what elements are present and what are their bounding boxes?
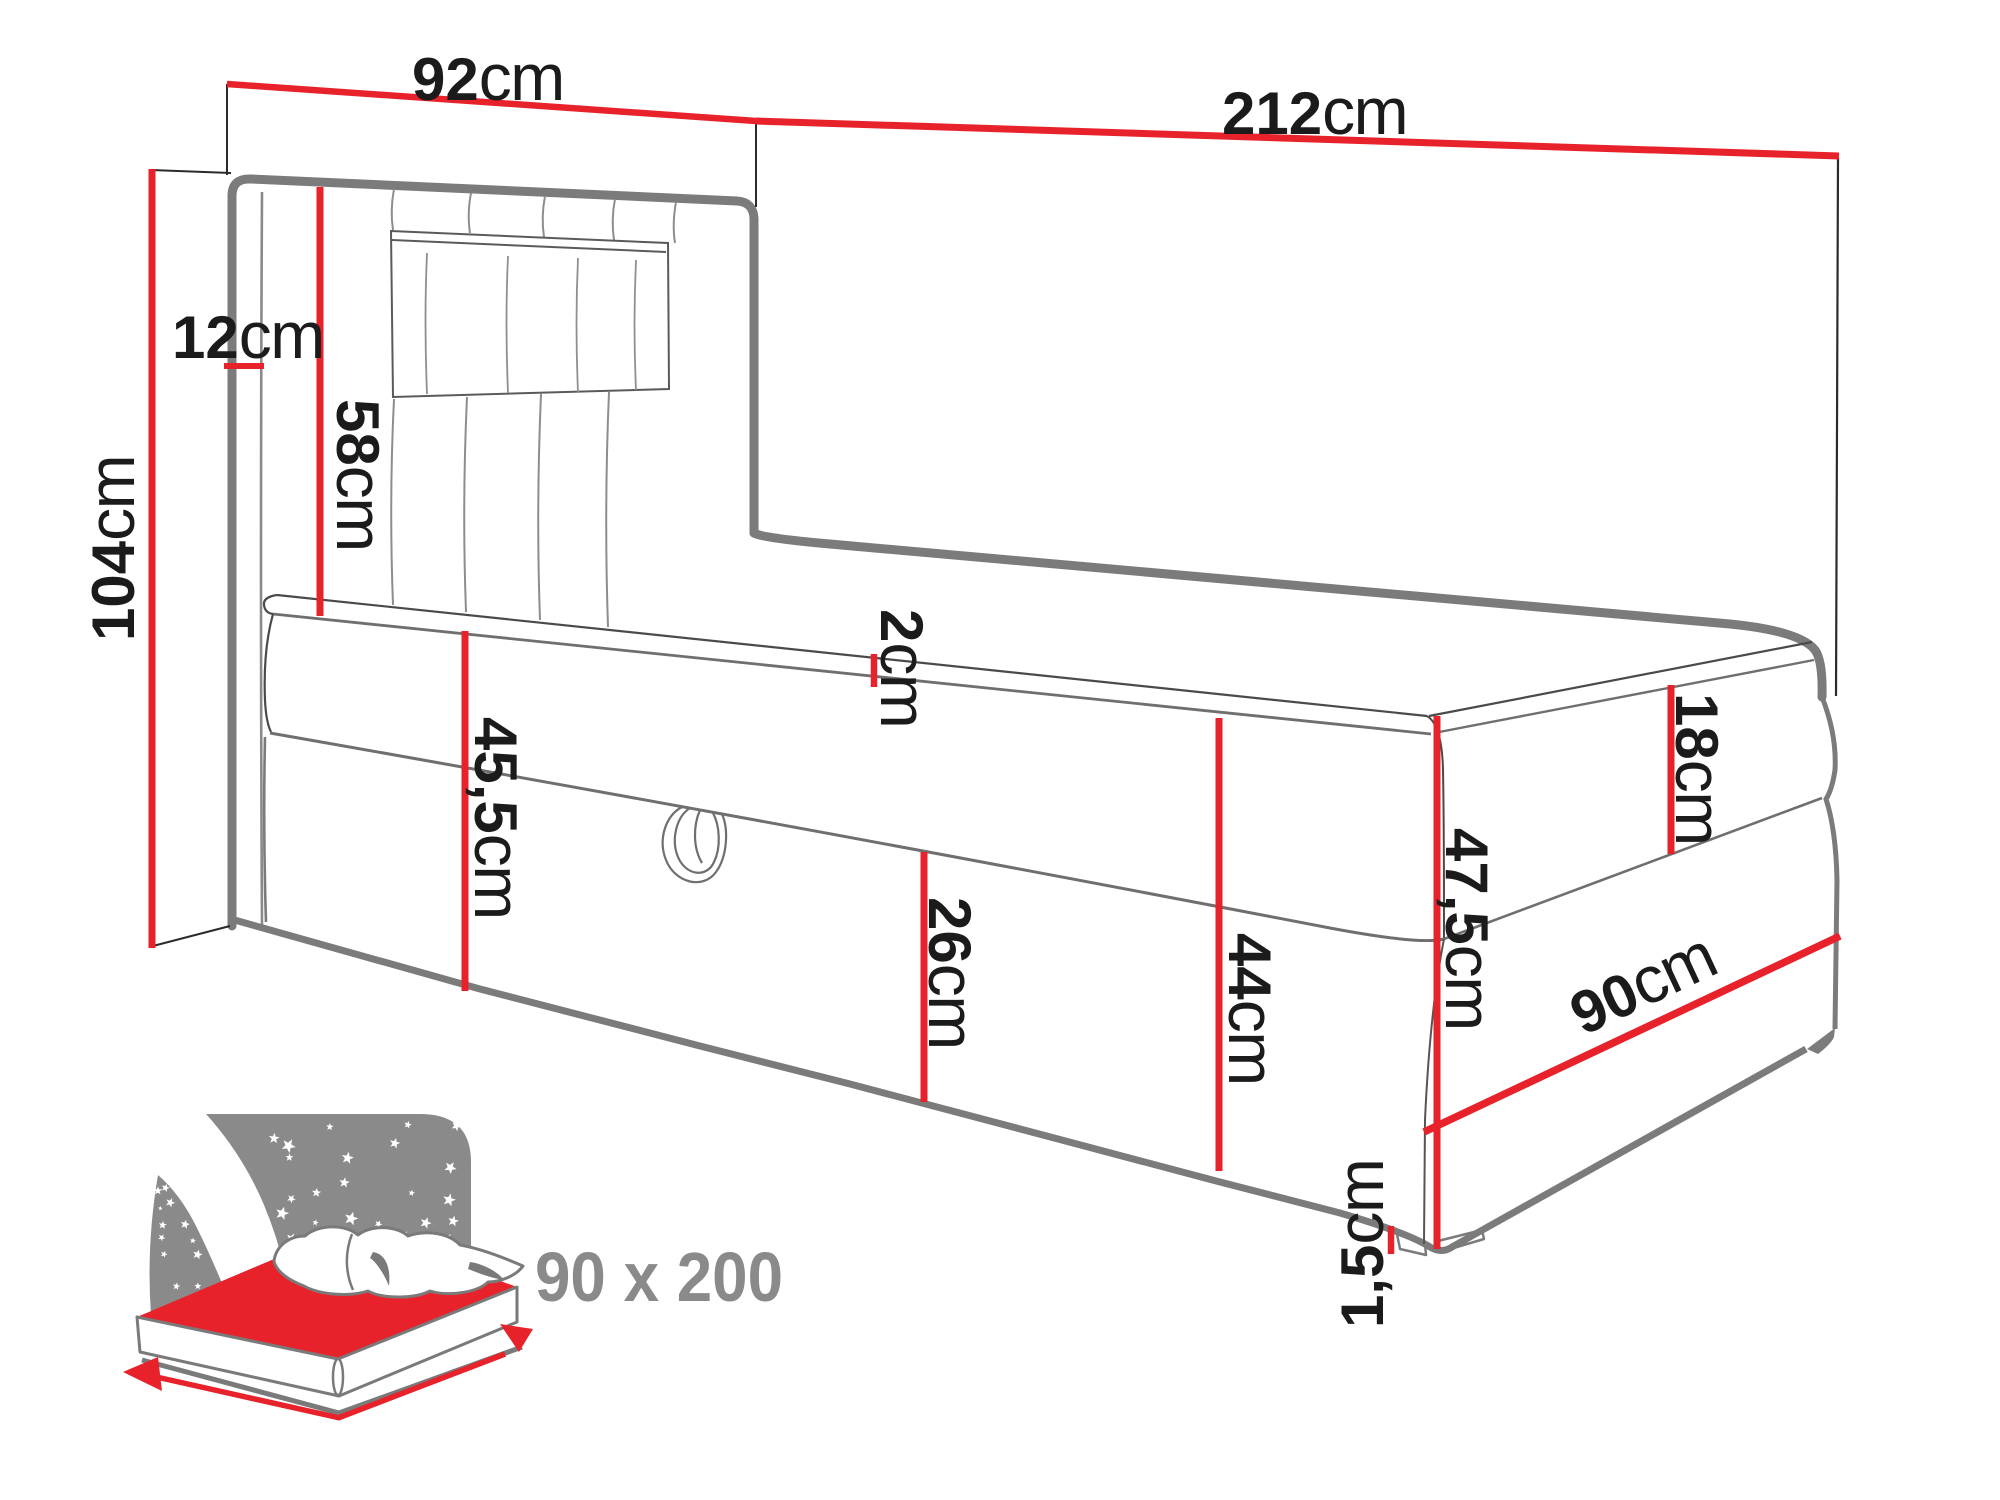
svg-text:2cm: 2cm xyxy=(867,609,941,727)
svg-text:12cm: 12cm xyxy=(172,298,324,372)
svg-text:45,5cm: 45,5cm xyxy=(461,717,535,919)
svg-text:44cm: 44cm xyxy=(1215,933,1289,1085)
svg-text:212cm: 212cm xyxy=(1222,74,1407,148)
svg-text:58cm: 58cm xyxy=(323,399,397,551)
svg-text:47,5cm: 47,5cm xyxy=(1432,828,1506,1030)
svg-text:90 x 200: 90 x 200 xyxy=(535,1238,783,1316)
svg-text:92cm: 92cm xyxy=(412,40,564,114)
svg-text:26cm: 26cm xyxy=(915,897,989,1049)
svg-text:18cm: 18cm xyxy=(1662,693,1736,845)
svg-text:1,5cm: 1,5cm xyxy=(1323,1160,1397,1328)
svg-text:104cm: 104cm xyxy=(74,456,148,641)
